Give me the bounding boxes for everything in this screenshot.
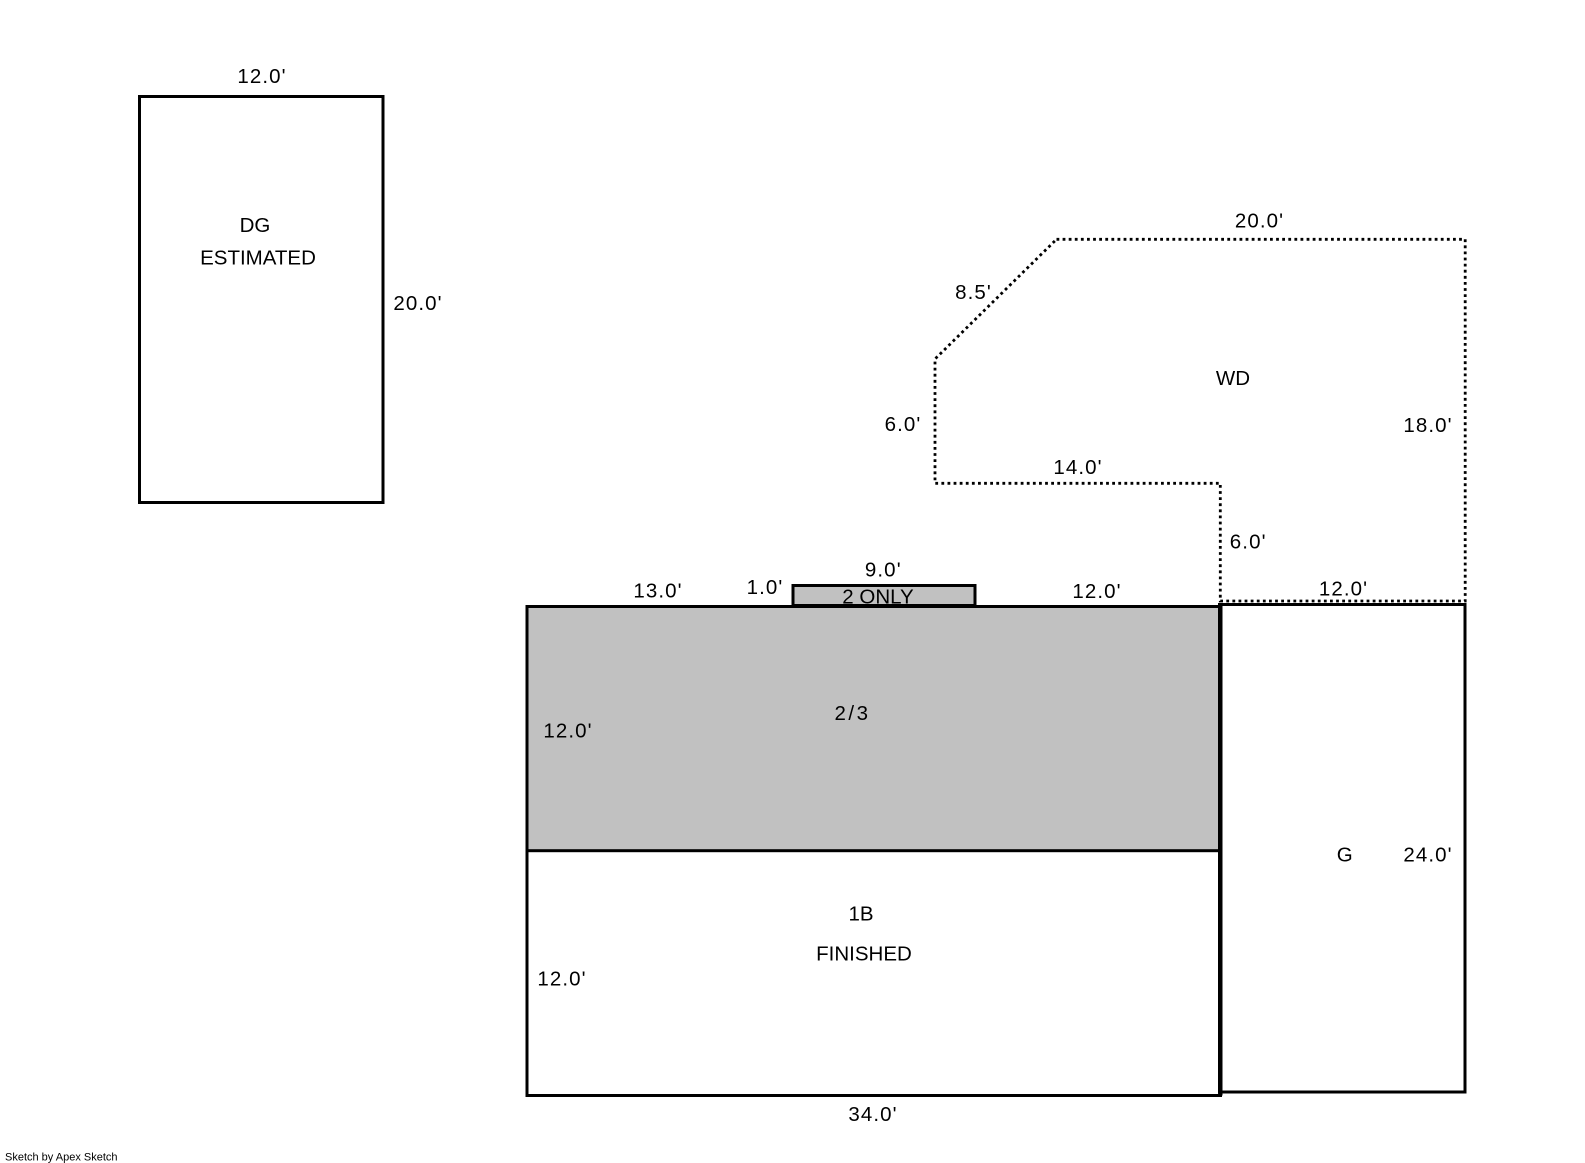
svg-text:1B: 1B — [848, 903, 873, 926]
svg-text:18.0': 18.0' — [1403, 414, 1452, 437]
svg-text:20.0': 20.0' — [393, 292, 442, 315]
svg-text:1.0': 1.0' — [747, 576, 784, 599]
svg-text:8.5': 8.5' — [955, 281, 992, 304]
svg-text:Sketch by Apex Sketch: Sketch by Apex Sketch — [5, 1152, 118, 1163]
svg-text:2 ONLY: 2 ONLY — [842, 586, 914, 609]
svg-text:34.0': 34.0' — [848, 1103, 897, 1126]
svg-text:2/3: 2/3 — [835, 702, 871, 725]
svg-text:12.0': 12.0' — [1072, 580, 1121, 603]
svg-text:9.0': 9.0' — [865, 559, 902, 582]
svg-text:ESTIMATED: ESTIMATED — [200, 247, 316, 270]
svg-text:G: G — [1337, 843, 1353, 866]
svg-text:6.0': 6.0' — [885, 413, 922, 436]
svg-text:12.0': 12.0' — [543, 720, 592, 743]
svg-text:14.0': 14.0' — [1053, 456, 1102, 479]
svg-text:6.0': 6.0' — [1230, 531, 1267, 554]
svg-text:WD: WD — [1216, 367, 1250, 390]
svg-text:DG: DG — [240, 214, 271, 237]
svg-text:FINISHED: FINISHED — [816, 943, 912, 966]
svg-text:12.0': 12.0' — [1319, 578, 1368, 601]
svg-text:12.0': 12.0' — [237, 65, 286, 88]
svg-text:13.0': 13.0' — [633, 580, 682, 603]
svg-text:20.0': 20.0' — [1235, 210, 1284, 233]
svg-text:24.0': 24.0' — [1403, 844, 1452, 867]
svg-text:12.0': 12.0' — [537, 968, 586, 991]
